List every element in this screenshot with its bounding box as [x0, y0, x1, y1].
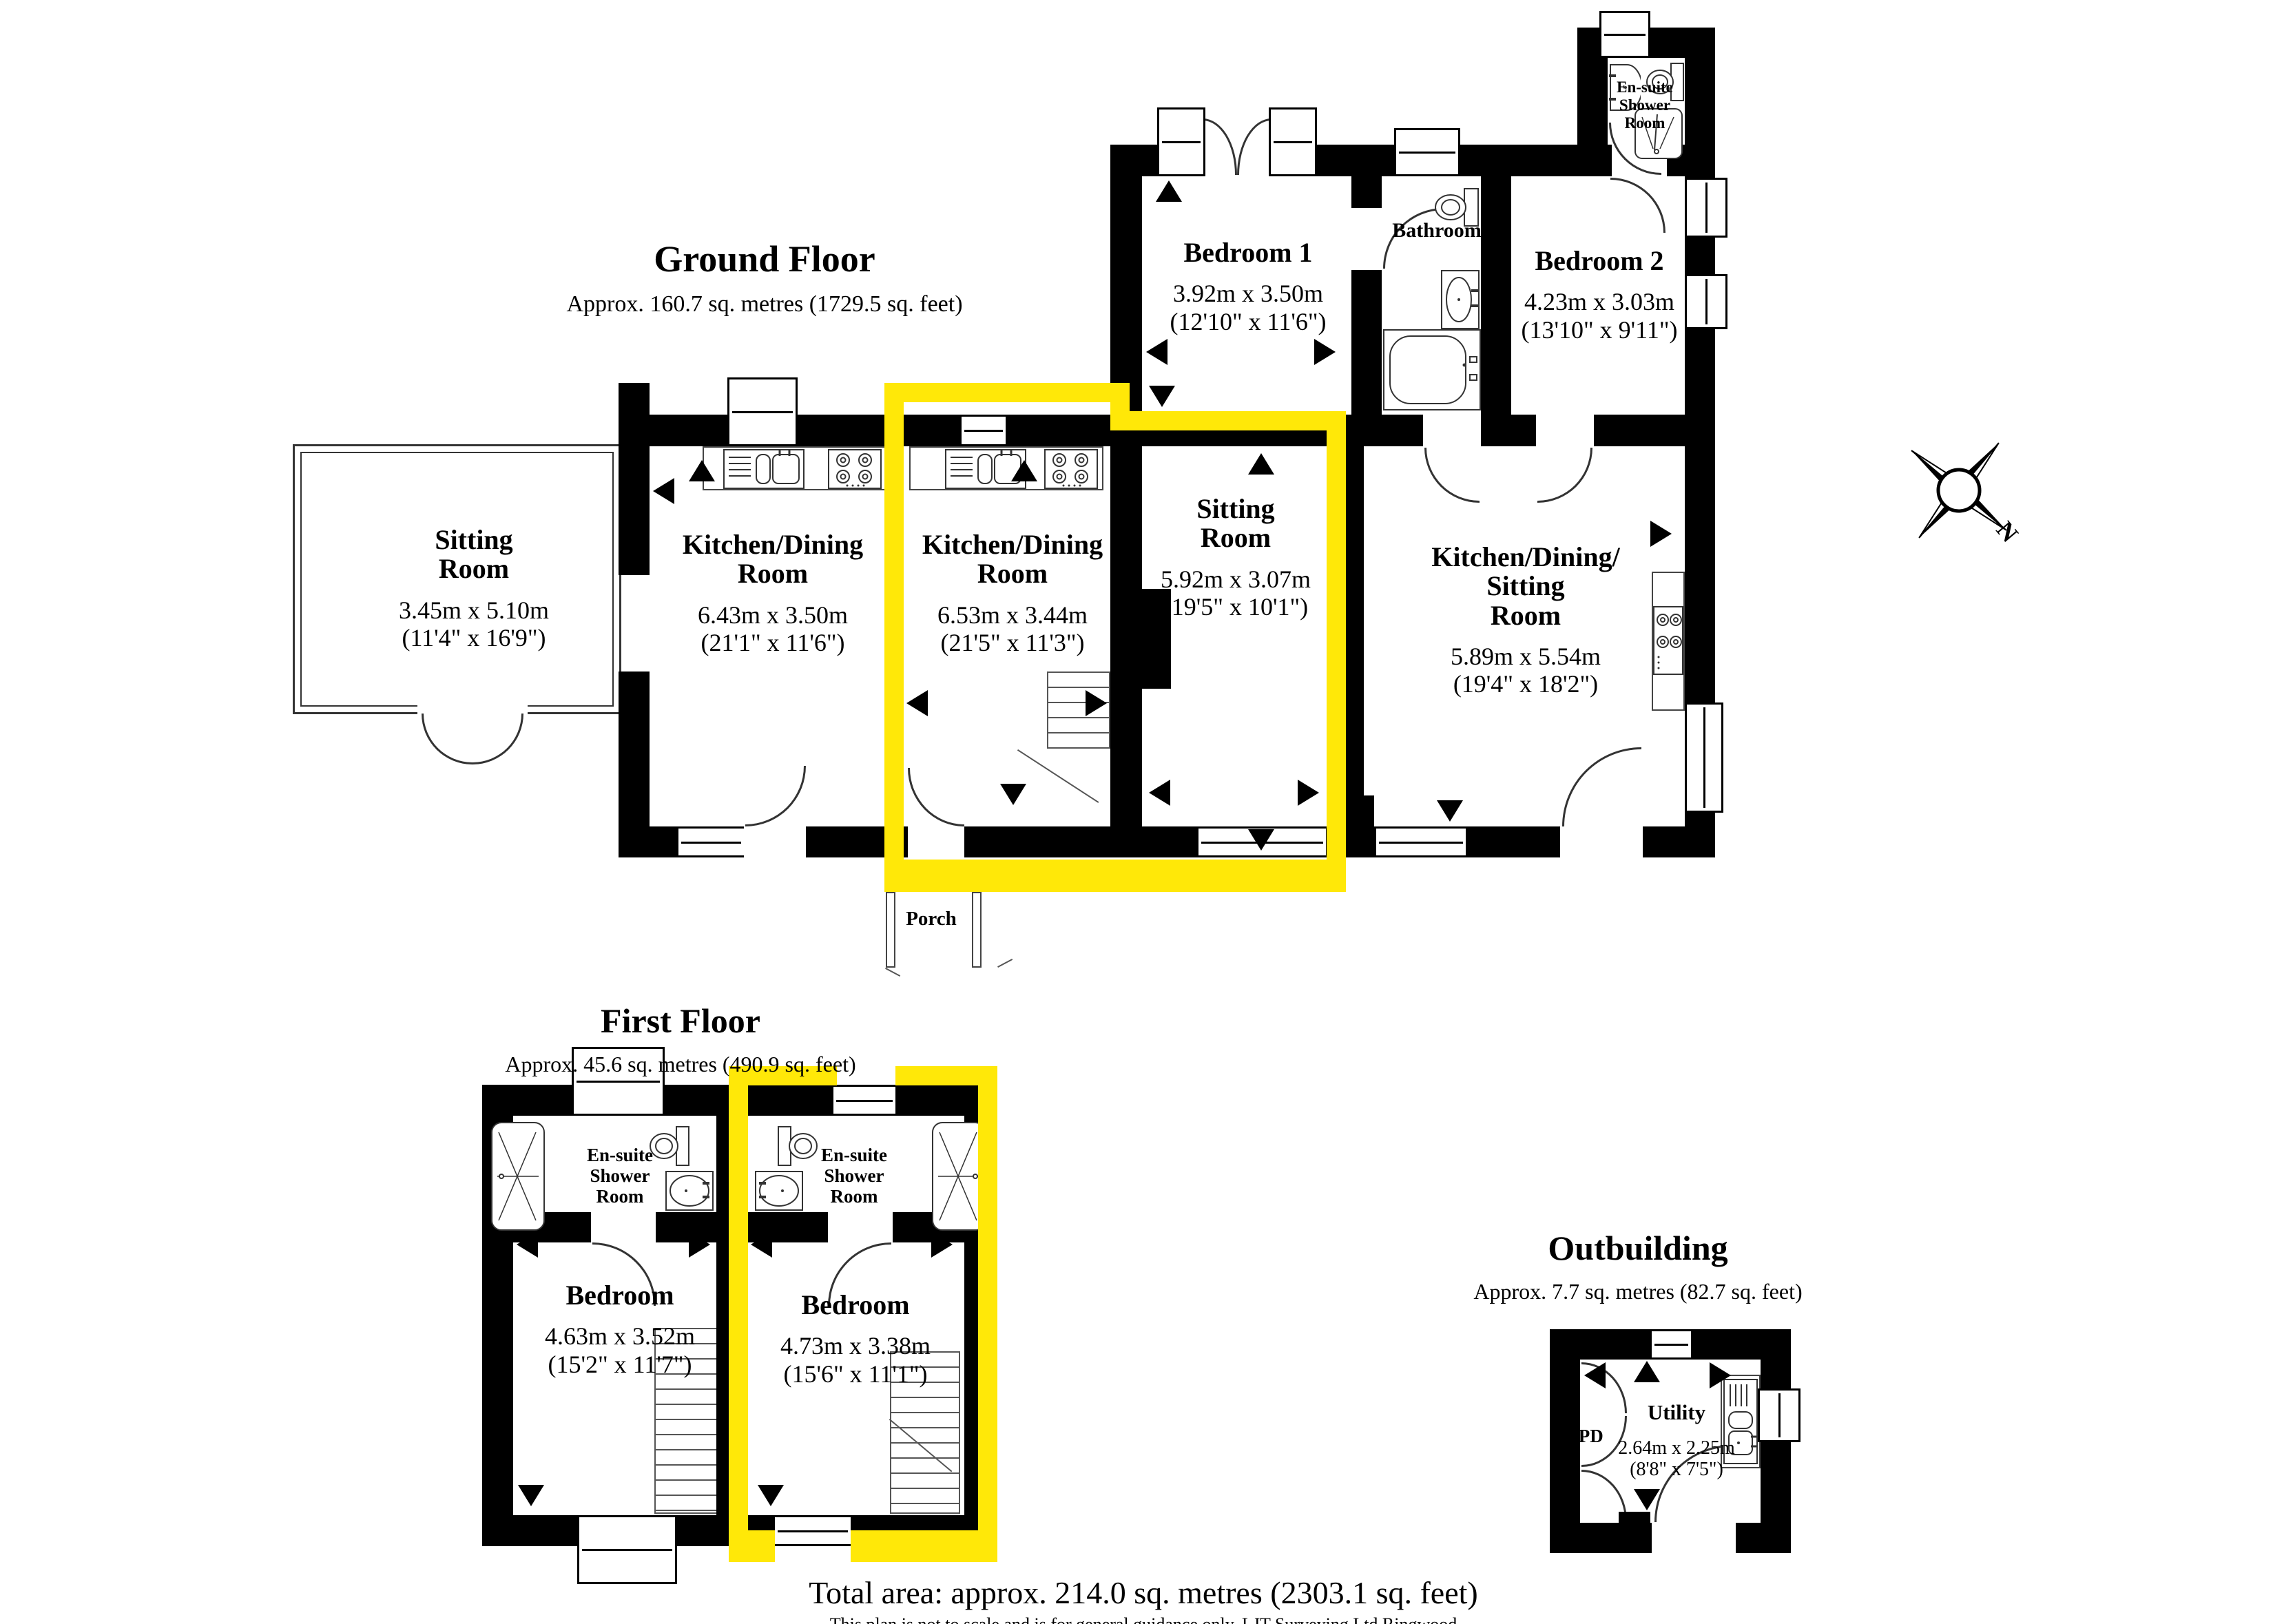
highlight-outline: [1110, 411, 1346, 430]
room-name: Bedroom 2: [1521, 247, 1677, 275]
room-dims: 5.92m x 3.07m (19'5" x 10'1"): [1161, 565, 1311, 621]
room-label-ensuite-right: En-suite Shower Room: [821, 1132, 887, 1220]
camera-arrow: [1149, 386, 1175, 407]
camera-arrow: [1650, 521, 1672, 547]
basin-icon: [755, 1171, 803, 1211]
highlight-outline: [978, 1066, 997, 1562]
hob-icon: [828, 449, 882, 489]
highlight-outline: [884, 860, 1346, 892]
room-label-utility: Utility 2.64m x 2.25m (8'8" x 7'5"): [1618, 1388, 1735, 1492]
first-floor-subtitle: Approx. 45.6 sq. metres (490.9 sq. feet): [505, 1052, 855, 1077]
room-label-bedroom-2: Bedroom 2 4.23m x 3.03m (13'10" x 9'11"): [1521, 234, 1677, 356]
room-label-ensuite-left: En-suite Shower Room: [587, 1132, 653, 1220]
french-door-right: [473, 714, 523, 764]
wall: [665, 1085, 833, 1116]
appliance-box: [1758, 1388, 1800, 1442]
wall: [1481, 415, 1536, 446]
camera-arrow: [1149, 780, 1170, 806]
ground-floor-title: Ground Floor: [566, 240, 962, 279]
wall: [1313, 145, 1398, 176]
toilet-icon: [647, 1124, 690, 1168]
wall: [1685, 58, 1715, 178]
room-label-porch: Porch: [906, 895, 957, 942]
room-name: Bedroom: [780, 1291, 931, 1320]
window-line: [964, 430, 1003, 432]
wall: [1619, 1512, 1650, 1523]
room-dims: 6.53m x 3.44m (21'5" x 11'3"): [922, 601, 1103, 657]
room-name: Porch: [906, 908, 957, 930]
room-name: En-suite Shower Room: [1617, 79, 1673, 132]
ensuite-bedroom-door: [1610, 178, 1665, 233]
camera-arrow: [1011, 460, 1037, 481]
window: [727, 377, 798, 446]
room-dims: 4.73m x 3.38m (15'6" x 11'1"): [780, 1332, 931, 1388]
room-name: Sitting Room: [399, 525, 549, 584]
ground-floor-subtitle: Approx. 160.7 sq. metres (1729.5 sq. fee…: [566, 291, 962, 317]
outbuilding-heading: Outbuilding Approx. 7.7 sq. metres (82.7…: [1473, 1218, 1802, 1317]
wall: [482, 1515, 582, 1546]
window: [1652, 1329, 1691, 1360]
room-dims: 3.45m x 5.10m (11'4" x 16'9"): [399, 596, 549, 652]
window-line: [1399, 152, 1455, 154]
room-name: Bedroom: [545, 1281, 695, 1310]
highlight-outline: [1327, 411, 1346, 892]
camera-arrow: [1634, 1361, 1660, 1382]
hob-icon: [1044, 449, 1098, 489]
appliance-line: [1778, 1393, 1781, 1437]
disclaimer-line: This plan is not to scale and is for gen…: [830, 1614, 1457, 1624]
floorplan: Ground Floor Approx. 160.7 sq. metres (1…: [0, 0, 2273, 1624]
wall: [1110, 145, 1161, 176]
window: [1394, 128, 1460, 176]
wall: [1550, 1523, 1652, 1553]
window-line: [1162, 141, 1201, 143]
porch-foot: [997, 959, 1013, 968]
room-label-bathroom: Bathroom: [1392, 207, 1481, 255]
basin-icon: [1441, 270, 1480, 329]
porch-foot: [885, 968, 900, 977]
toilet-icon: [777, 1124, 820, 1168]
camera-arrow: [1298, 780, 1319, 806]
wall: [1685, 329, 1715, 702]
window: [1685, 702, 1723, 813]
window: [833, 1085, 895, 1116]
window: [1157, 107, 1205, 176]
window: [962, 415, 1006, 446]
window-line: [1604, 34, 1646, 36]
window: [1685, 274, 1727, 329]
room-name: Kitchen/Dining Room: [683, 530, 863, 589]
first-floor-title: First Floor: [505, 1003, 855, 1039]
wall: [1736, 1523, 1791, 1553]
window: [678, 826, 744, 857]
room-label-kitchen-dining-2: Kitchen/Dining Room 6.53m x 3.44m (21'5"…: [922, 518, 1103, 669]
window: [775, 1515, 851, 1546]
wall: [1685, 238, 1715, 274]
camera-arrow: [653, 478, 674, 504]
room-dims: 2.64m x 2.25m (8'8" x 7'5"): [1618, 1437, 1735, 1481]
wall: [1110, 446, 1142, 826]
window-line: [732, 411, 793, 413]
window-line: [836, 1100, 893, 1102]
wall: [1685, 813, 1715, 857]
camera-arrow: [931, 1231, 953, 1258]
room-dims: 4.23m x 3.03m (13'10" x 9'11"): [1521, 288, 1677, 344]
wall: [1466, 826, 1560, 857]
camera-arrow: [1584, 1362, 1606, 1388]
highlight-outline: [884, 383, 1130, 402]
porch-wall: [972, 892, 982, 968]
room-name: Bedroom 1: [1170, 238, 1326, 267]
highlight-outline: [729, 1530, 775, 1562]
wall: [1645, 28, 1715, 58]
basin-icon: [665, 1171, 714, 1211]
camera-arrow: [1710, 1362, 1731, 1388]
wall: [1351, 270, 1382, 415]
room-name: Kitchen/Dining Room: [922, 530, 1103, 589]
camera-arrow: [1437, 800, 1463, 822]
room-name: Utility: [1618, 1401, 1735, 1425]
window-line: [1274, 141, 1312, 143]
room-label-kitchen-dining-1: Kitchen/Dining Room 6.43m x 3.50m (21'1"…: [683, 518, 863, 669]
window-line: [778, 1530, 848, 1532]
wall: [619, 383, 650, 575]
french-door-right: [1237, 118, 1272, 175]
porch-wall: [886, 892, 895, 968]
wall: [793, 415, 962, 446]
window: [1376, 826, 1466, 857]
wall: [1110, 145, 1142, 415]
wall: [619, 826, 678, 857]
camera-arrow: [689, 1231, 710, 1258]
stairs-rail: [1017, 749, 1099, 803]
window: [1269, 107, 1317, 176]
camera-arrow: [1146, 339, 1167, 365]
front-door: [908, 768, 964, 826]
bedroom1-door: [1424, 448, 1480, 503]
shower-icon: [490, 1121, 546, 1231]
wall: [1345, 446, 1364, 826]
room-label-sitting-room-1: Sitting Room 3.45m x 5.10m (11'4" x 16'9…: [399, 513, 549, 664]
camera-arrow: [1086, 690, 1107, 716]
window-line: [1654, 1344, 1688, 1346]
ground-floor-heading: Ground Floor Approx. 160.7 sq. metres (1…: [566, 227, 962, 330]
room-label-sitting-room-2: Sitting Room 5.92m x 3.07m (19'5" x 10'1…: [1161, 482, 1311, 633]
window: [577, 1515, 677, 1584]
room-label-bedroom-right: Bedroom 4.73m x 3.38m (15'6" x 11'1"): [780, 1278, 931, 1400]
disclaimer-text: This plan is not to scale and is for gen…: [830, 1602, 1457, 1624]
window-line: [582, 1549, 672, 1551]
camera-arrow: [906, 690, 928, 716]
bedroom2-door: [1537, 448, 1592, 503]
back-door: [745, 766, 806, 826]
room-name: En-suite Shower Room: [821, 1145, 887, 1207]
room-label-cpd: CPD: [1565, 1413, 1603, 1459]
window-line: [1379, 842, 1463, 844]
outbuilding-title: Outbuilding: [1473, 1230, 1802, 1267]
camera-arrow: [1156, 180, 1182, 202]
room-label-ensuite-gf: En-suite Shower Room: [1617, 66, 1673, 144]
room-dims: 4.63m x 3.52m (15'2" x 11'7"): [545, 1322, 695, 1378]
room-name: Kitchen/Dining/ Sitting Room: [1431, 543, 1619, 630]
room-name: Bathroom: [1392, 219, 1481, 242]
room-dims: 6.43m x 3.50m (21'1" x 11'6"): [683, 601, 863, 657]
room-dims: 3.92m x 3.50m (12'10" x 11'6"): [1170, 280, 1326, 335]
window-line: [681, 842, 741, 844]
french-door-left: [422, 714, 473, 764]
camera-arrow: [689, 460, 715, 481]
camera-arrow: [1000, 784, 1026, 805]
window-line: [1705, 183, 1708, 233]
camera-arrow: [1248, 453, 1274, 475]
highlight-outline: [851, 1530, 997, 1562]
camera-arrow: [539, 1216, 565, 1238]
first-floor-heading: First Floor Approx. 45.6 sq. metres (490…: [505, 990, 855, 1090]
hob-icon: [1653, 606, 1683, 675]
highlight-outline: [884, 383, 904, 892]
room-name: CPD: [1565, 1426, 1603, 1446]
window: [1599, 11, 1650, 58]
camera-arrow: [518, 1485, 544, 1506]
camera-arrow: [1248, 829, 1274, 851]
room-label-bedroom-1: Bedroom 1 3.92m x 3.50m (12'10" x 11'6"): [1170, 226, 1326, 348]
french-door-left: [1203, 118, 1237, 175]
wall: [1481, 176, 1511, 415]
bath-icon: [1383, 329, 1481, 410]
camera-arrow: [517, 1231, 538, 1258]
kds-door: [1562, 747, 1641, 826]
room-name: En-suite Shower Room: [587, 1145, 653, 1207]
highlight-outline: [729, 1066, 748, 1562]
room-label-kitchen-dining-sitting: Kitchen/Dining/ Sitting Room 5.89m x 5.5…: [1431, 530, 1619, 711]
camera-arrow: [758, 1485, 784, 1506]
outbuilding-subtitle: Approx. 7.7 sq. metres (82.7 sq. feet): [1473, 1279, 1802, 1304]
window-line: [1703, 707, 1705, 808]
kitchen-sink-icon: [723, 449, 805, 489]
camera-arrow: [751, 1231, 772, 1258]
room-dims: 5.89m x 5.54m (19'4" x 18'2"): [1431, 643, 1619, 698]
room-name: Sitting Room: [1161, 495, 1311, 553]
room-label-bedroom-left: Bedroom 4.63m x 3.52m (15'2" x 11'7"): [545, 1269, 695, 1391]
wall: [964, 826, 1198, 857]
compass-icon: N: [1890, 421, 2042, 573]
wall: [1351, 176, 1382, 208]
window-line: [1705, 279, 1708, 324]
window: [1685, 178, 1727, 238]
